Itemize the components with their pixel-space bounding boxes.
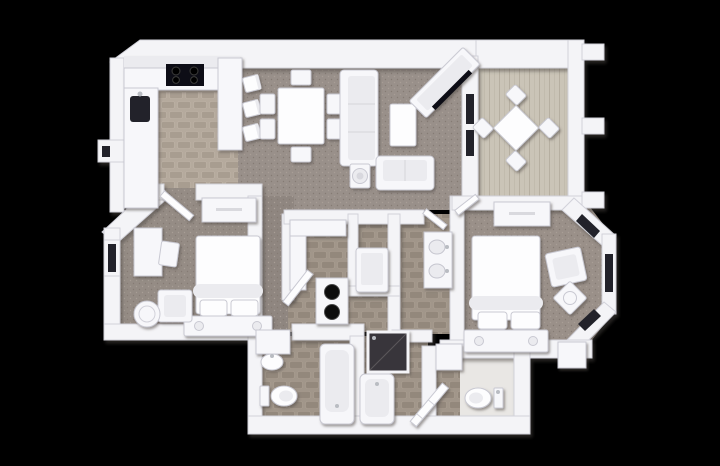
bedroom2-pillow (200, 300, 227, 316)
toilet-tank (260, 386, 269, 406)
bedroom2-desk-chair (158, 241, 179, 267)
dining-chair (291, 147, 311, 162)
balcony-door-glass-lower (466, 130, 474, 156)
master-nightstand-left (436, 344, 462, 370)
linen-shelf (256, 330, 290, 354)
cooktop (166, 64, 204, 86)
dining-chair (291, 70, 311, 85)
bedroom2-armchair-seat (164, 295, 186, 317)
bedroom2-pillow (231, 300, 258, 316)
breakfast-bar-counter (218, 58, 242, 150)
burner (191, 77, 198, 84)
bench-knob (195, 322, 204, 331)
wc-toilet-button (496, 390, 500, 394)
water-closet (465, 388, 503, 408)
bay-window-right-glass (605, 254, 613, 292)
washer-door (325, 285, 340, 300)
bedroom2-window-glass (108, 244, 116, 272)
master-pillow (478, 312, 507, 329)
burner (172, 67, 180, 75)
bench-knob (253, 322, 262, 331)
side-table-speaker-cone (357, 173, 364, 180)
dryer-door (325, 305, 340, 320)
vanity-sink (429, 240, 445, 254)
master-pillow (511, 312, 540, 329)
bedroom2-round-table (134, 301, 160, 327)
balcony-top-wall (476, 40, 580, 68)
laundry-bath-wall (388, 214, 400, 336)
balcony-door-glass-upper (466, 94, 474, 124)
bench-knob (529, 337, 538, 346)
railing-post-middle (582, 118, 604, 134)
railing-post-bottom (582, 192, 604, 208)
toilet-seat (279, 391, 293, 402)
burner (173, 77, 180, 84)
vanity-faucet (445, 245, 449, 249)
bench-knob (475, 337, 484, 346)
dining-chair (260, 94, 275, 114)
dining-table (278, 88, 324, 144)
water-heater-top (361, 253, 383, 285)
railing-post-top (582, 44, 604, 60)
render-stage (0, 0, 720, 466)
kitchen-sink (130, 96, 150, 122)
wc-toilet-seat (469, 393, 483, 404)
laundry-counter-top (290, 220, 346, 236)
sofa-cushions (348, 76, 375, 160)
kitchen-faucet (138, 92, 143, 97)
kitchen-window-glass (102, 146, 110, 157)
vanity-faucet (445, 269, 449, 273)
bedroom2-desk (134, 228, 162, 276)
bedroom2-dresser-handle (216, 208, 242, 211)
kitchen-left-wall (110, 58, 124, 212)
master-blanket-roll (469, 296, 543, 310)
master-dresser-handle (509, 212, 535, 215)
bathtub-basin (325, 350, 349, 412)
bedroom2-blanket-roll (193, 284, 263, 298)
master-bathtub-drain (375, 382, 379, 386)
burner (190, 67, 198, 75)
floor-plan-render (0, 0, 720, 466)
coffee-table (390, 104, 416, 146)
shower-head (372, 336, 376, 340)
vanity-sink (429, 264, 445, 278)
sink-faucet (270, 354, 274, 358)
water-closet-floor (458, 352, 520, 424)
kitchen-window-ledge (98, 140, 124, 162)
dining-chair (260, 119, 275, 139)
master-nightstand-right (558, 342, 586, 368)
bathtub-drain (335, 404, 339, 408)
